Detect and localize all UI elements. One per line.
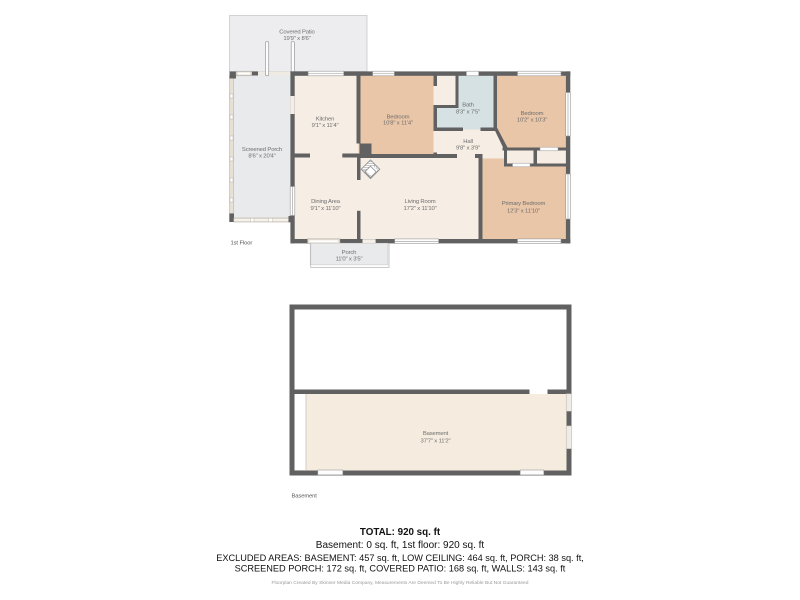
svg-text:EXCLUDED AREAS: BASEMENT: 457: EXCLUDED AREAS: BASEMENT: 457 sq. ft, LO… (216, 553, 584, 563)
svg-text:Hall: Hall (463, 139, 473, 145)
svg-text:Bedroom: Bedroom (521, 111, 544, 117)
svg-text:Basement: Basement (423, 431, 449, 437)
svg-text:Covered Patio: Covered Patio (279, 30, 315, 36)
svg-text:Porch: Porch (342, 250, 357, 256)
svg-text:8'6" x 20'4": 8'6" x 20'4" (248, 153, 275, 159)
svg-text:37'7" x 11'2": 37'7" x 11'2" (421, 438, 451, 444)
svg-text:10'8" x 11'4": 10'8" x 11'4" (383, 121, 413, 127)
svg-text:Living Room: Living Room (404, 199, 435, 205)
svg-text:Screened Porch: Screened Porch (242, 147, 282, 153)
svg-text:Bath: Bath (462, 103, 474, 109)
svg-text:Basement: Basement (292, 493, 318, 499)
svg-text:Primary Bedroom: Primary Bedroom (502, 201, 546, 207)
svg-text:Dining Area: Dining Area (311, 199, 341, 205)
svg-text:9'1" x 11'10": 9'1" x 11'10" (311, 206, 341, 212)
svg-text:10'2" x 10'3": 10'2" x 10'3" (517, 118, 547, 124)
svg-text:12'3" x 11'10": 12'3" x 11'10" (507, 208, 540, 214)
svg-text:19'9" x 8'6": 19'9" x 8'6" (283, 36, 310, 42)
svg-text:1st Floor: 1st Floor (231, 241, 253, 247)
svg-text:SCREENED PORCH: 172 sq. ft, CO: SCREENED PORCH: 172 sq. ft, COVERED PATI… (235, 563, 566, 573)
svg-text:Basement: 0 sq. ft, 1st floor:: Basement: 0 sq. ft, 1st floor: 920 sq. f… (316, 540, 485, 551)
svg-text:9'1" x 11'4": 9'1" x 11'4" (312, 123, 339, 129)
svg-text:Kitchen: Kitchen (316, 116, 335, 122)
svg-text:TOTAL: 920 sq. ft: TOTAL: 920 sq. ft (360, 527, 441, 538)
svg-text:8'3" x 7'5": 8'3" x 7'5" (456, 110, 480, 116)
svg-text:9'8" x 3'9": 9'8" x 3'9" (456, 146, 480, 152)
svg-text:11'0" x 3'5": 11'0" x 3'5" (336, 257, 363, 263)
svg-text:Floorplan Created By Skinner M: Floorplan Created By Skinner Media Compa… (272, 580, 529, 586)
svg-text:17'2" x 11'10": 17'2" x 11'10" (403, 206, 436, 212)
